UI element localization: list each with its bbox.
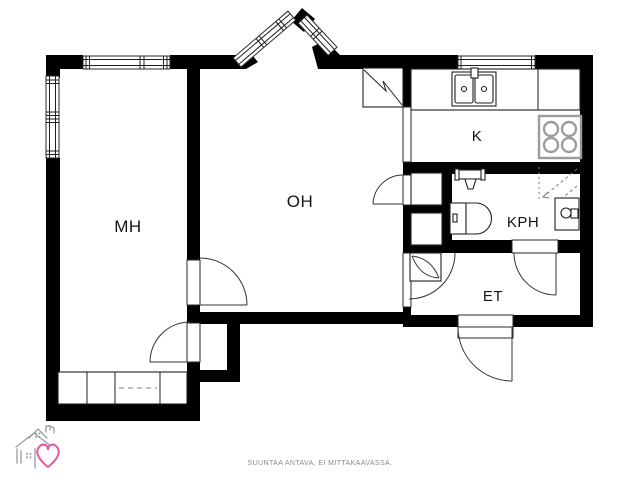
kitchen-passage [403,107,411,162]
bedroom-window-left [46,76,59,158]
room-label-hallway: ET [483,288,503,305]
toilet-icon [450,203,492,234]
bedroom-window-top [83,56,170,69]
flue-icon [363,68,403,107]
doors [150,175,556,381]
bay-window-left [233,11,296,67]
entry-closet [410,253,441,281]
kitchen-sink-icon [452,68,496,106]
floor-plan-page: MH OH K KPH ET SUUNTAA ANTAVA, EI MITTAK… [0,0,640,480]
stove-icon [539,116,581,158]
room-label-bedroom: MH [114,217,141,236]
door-bedroom [200,258,247,305]
entrance-landing [458,327,513,338]
room-label-kitchen: K [472,128,483,145]
footer-disclaimer: SUUNTAA ANTAVA, EI MITTAKAAVASSA. [248,460,393,467]
washing-machine-icon [555,198,579,230]
door-hall-closet [373,175,403,204]
door-bathroom [514,253,556,295]
heart-icon [37,445,58,467]
wardrobe-icon [58,372,187,404]
fixtures [58,68,581,404]
bathroom-sink-icon [455,169,485,189]
house-heart-logo [16,426,59,468]
room-label-living-room: OH [287,192,314,211]
room-label-bathroom: KPH [507,214,539,231]
door-bedroom-closet [150,322,190,362]
floor-plan-drawing: MH OH K KPH ET SUUNTAA ANTAVA, EI MITTAK… [0,0,640,480]
kitchen-window [458,56,535,69]
